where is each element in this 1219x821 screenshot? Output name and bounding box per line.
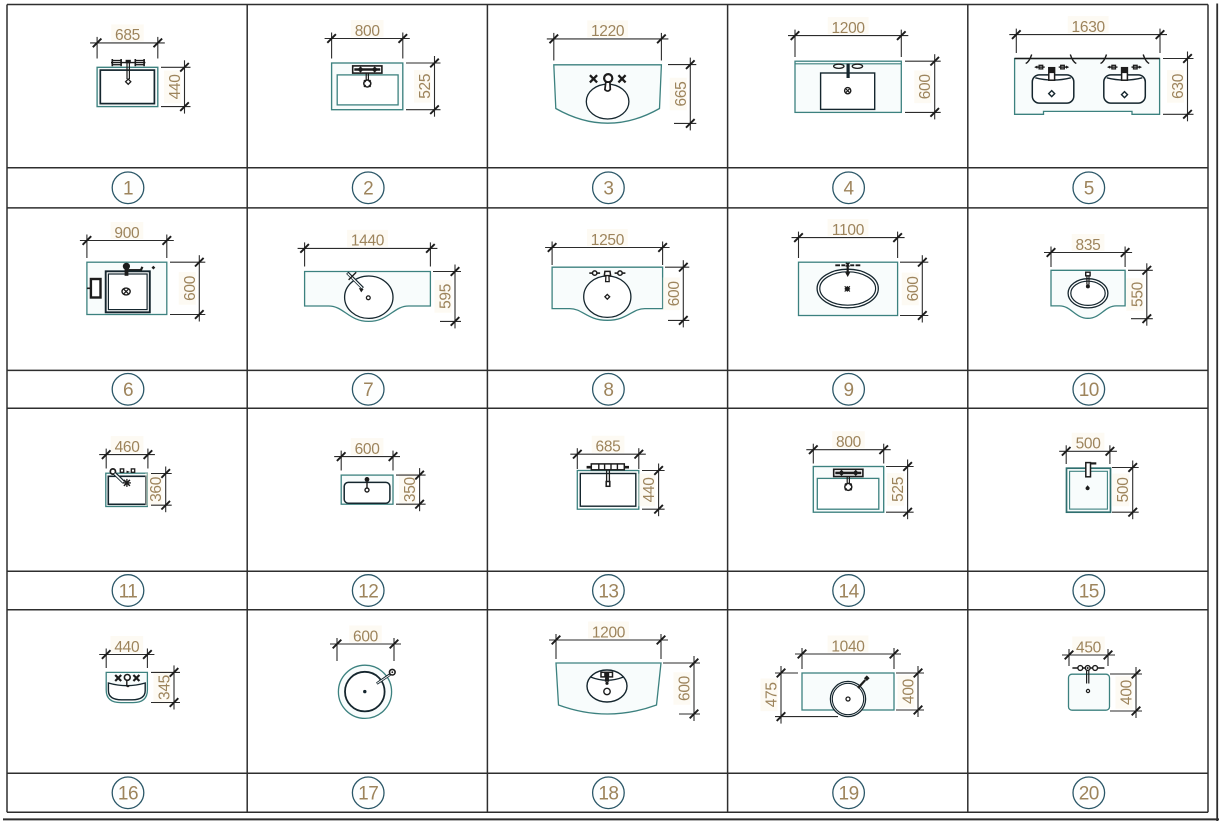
svg-text:8: 8 [603, 380, 613, 401]
svg-text:13: 13 [598, 581, 618, 602]
svg-text:685: 685 [115, 27, 140, 44]
svg-text:1: 1 [123, 179, 133, 200]
svg-text:11: 11 [119, 581, 138, 602]
svg-text:4: 4 [844, 179, 855, 200]
svg-text:1100: 1100 [832, 222, 865, 239]
svg-text:900: 900 [114, 225, 140, 242]
svg-text:600: 600 [677, 675, 694, 701]
svg-text:1250: 1250 [591, 232, 625, 249]
svg-text:460: 460 [115, 439, 141, 456]
svg-text:1630: 1630 [1072, 19, 1106, 36]
svg-text:1440: 1440 [351, 233, 385, 250]
svg-text:9: 9 [844, 380, 854, 401]
svg-text:600: 600 [905, 276, 922, 302]
svg-text:12: 12 [358, 581, 378, 602]
svg-text:800: 800 [836, 434, 862, 451]
svg-text:16: 16 [118, 784, 138, 805]
svg-text:800: 800 [355, 23, 381, 40]
svg-text:500: 500 [1115, 477, 1132, 503]
svg-text:525: 525 [417, 74, 434, 99]
svg-text:15: 15 [1079, 581, 1099, 602]
svg-text:440: 440 [167, 74, 184, 100]
svg-text:600: 600 [666, 281, 683, 307]
svg-text:350: 350 [402, 476, 419, 502]
svg-text:20: 20 [1079, 784, 1099, 805]
svg-text:14: 14 [839, 581, 860, 602]
svg-text:1200: 1200 [592, 624, 626, 641]
svg-text:475: 475 [764, 682, 781, 707]
svg-text:6: 6 [123, 380, 133, 401]
svg-text:600: 600 [917, 74, 934, 100]
svg-text:600: 600 [353, 628, 379, 645]
svg-text:2: 2 [363, 179, 373, 200]
svg-text:400: 400 [1119, 679, 1136, 705]
svg-text:600: 600 [355, 441, 381, 458]
svg-text:500: 500 [1076, 436, 1102, 453]
svg-text:360: 360 [148, 476, 165, 502]
svg-text:1040: 1040 [831, 638, 865, 655]
svg-text:19: 19 [839, 784, 859, 805]
svg-text:17: 17 [358, 784, 378, 805]
svg-text:665: 665 [673, 82, 690, 107]
svg-text:7: 7 [363, 380, 373, 401]
svg-text:1200: 1200 [831, 20, 865, 37]
svg-text:630: 630 [1170, 73, 1187, 99]
svg-text:345: 345 [157, 675, 174, 700]
svg-text:450: 450 [1076, 639, 1102, 656]
svg-text:3: 3 [603, 179, 613, 200]
svg-text:10: 10 [1079, 380, 1099, 401]
svg-text:400: 400 [901, 678, 918, 704]
svg-text:525: 525 [890, 477, 907, 502]
svg-text:550: 550 [1129, 281, 1146, 307]
svg-text:685: 685 [596, 439, 621, 456]
svg-text:18: 18 [598, 784, 618, 805]
svg-text:835: 835 [1076, 237, 1101, 254]
svg-text:440: 440 [114, 639, 140, 656]
svg-text:5: 5 [1084, 179, 1094, 200]
svg-text:1220: 1220 [591, 23, 625, 40]
svg-text:440: 440 [641, 477, 658, 503]
svg-text:600: 600 [182, 275, 199, 301]
svg-text:595: 595 [438, 284, 455, 309]
